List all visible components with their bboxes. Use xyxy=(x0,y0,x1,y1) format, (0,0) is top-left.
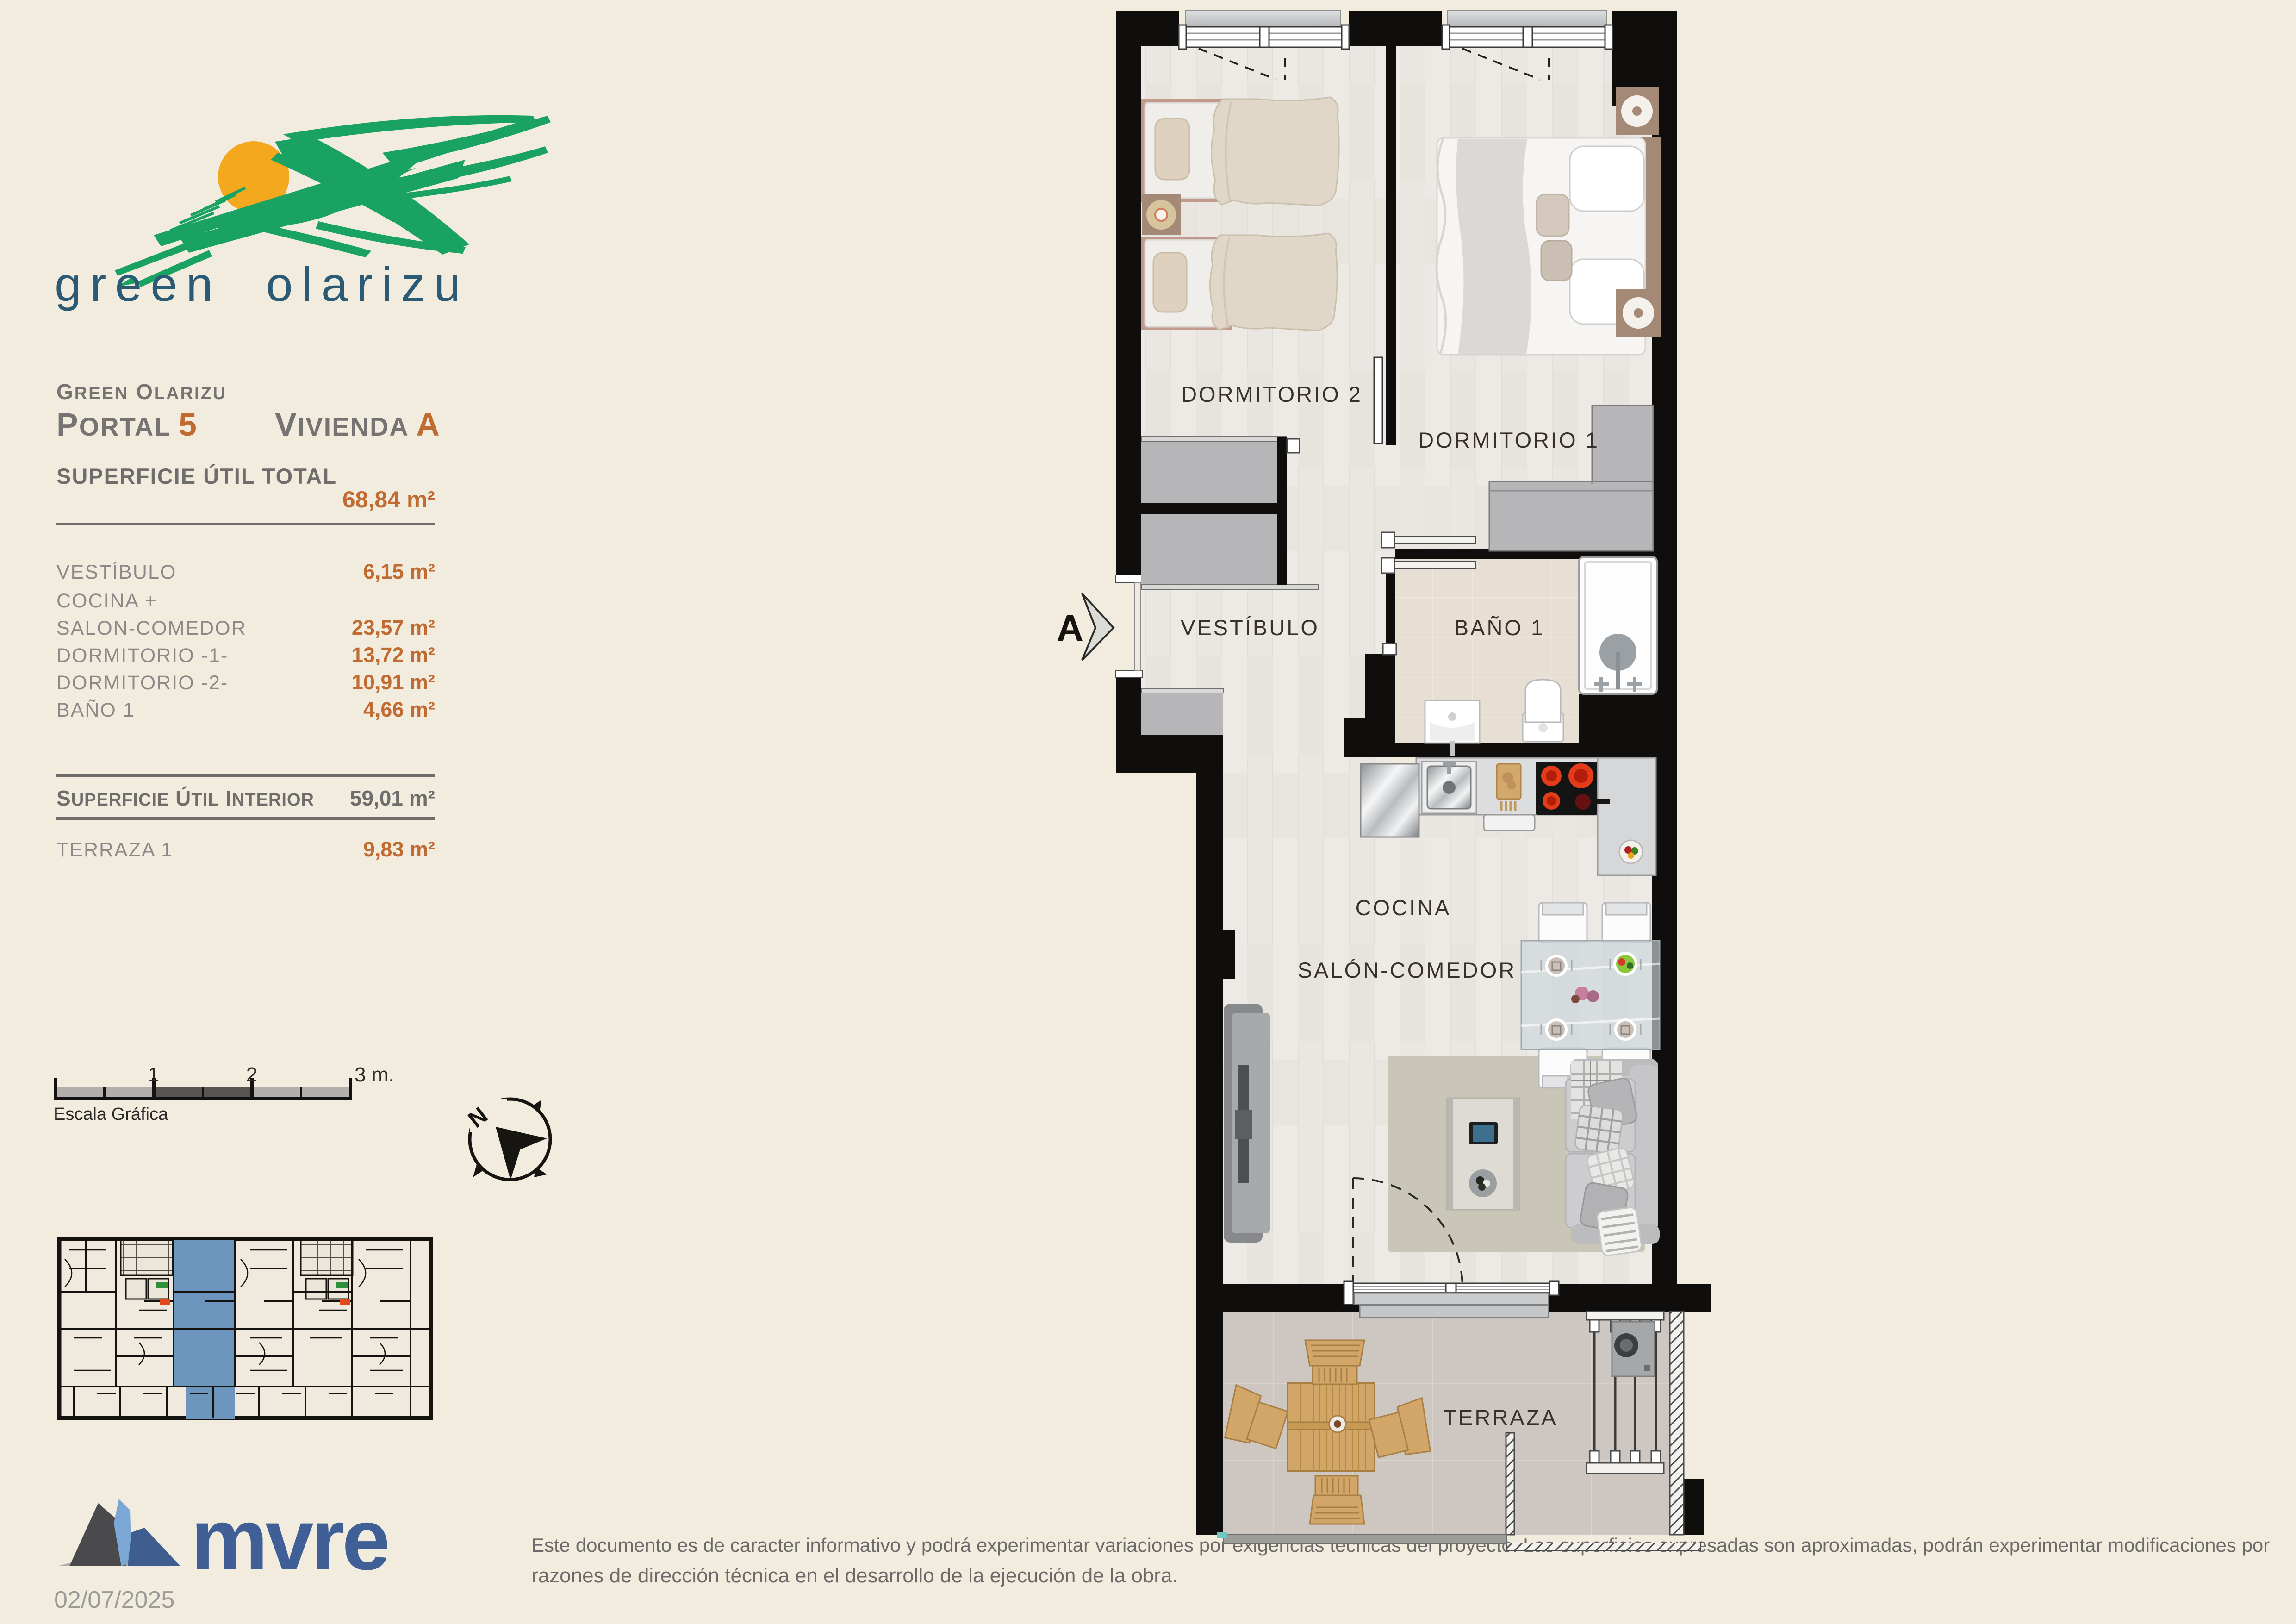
svg-text:DORMITORIO -2-: DORMITORIO -2- xyxy=(56,672,228,694)
svg-text:PORTAL 5: PORTAL 5 xyxy=(56,406,198,443)
svg-text:VESTÍBULO: VESTÍBULO xyxy=(56,561,176,583)
svg-text:DORMITORIO 2: DORMITORIO 2 xyxy=(1181,382,1363,406)
svg-text:4,66 m²: 4,66 m² xyxy=(363,698,435,721)
svg-text:mvre: mvre xyxy=(191,1491,388,1588)
svg-text:VIVIENDA A: VIVIENDA A xyxy=(275,406,441,443)
svg-text:DORMITORIO -1-: DORMITORIO -1- xyxy=(56,644,228,667)
svg-text:9,83 m²: 9,83 m² xyxy=(363,837,435,861)
svg-text:SUPERFICIE ÚTIL TOTAL: SUPERFICIE ÚTIL TOTAL xyxy=(56,464,337,488)
svg-text:DORMITORIO 1: DORMITORIO 1 xyxy=(1418,428,1599,452)
svg-text:10,91 m²: 10,91 m² xyxy=(352,670,435,694)
svg-text:TERRAZA: TERRAZA xyxy=(1443,1405,1557,1430)
svg-text:TERRAZA 1: TERRAZA 1 xyxy=(56,839,173,861)
svg-text:13,72 m²: 13,72 m² xyxy=(352,643,435,667)
svg-text:SALON-COMEDOR: SALON-COMEDOR xyxy=(56,617,247,639)
svg-text:VESTÍBULO: VESTÍBULO xyxy=(1181,615,1319,640)
svg-text:6,15 m²: 6,15 m² xyxy=(363,560,435,583)
svg-text:59,01 m²: 59,01 m² xyxy=(350,786,435,810)
svg-text:68,84 m²: 68,84 m² xyxy=(342,487,435,512)
svg-text:COCINA: COCINA xyxy=(1356,895,1451,920)
svg-text:02/07/2025: 02/07/2025 xyxy=(54,1587,174,1613)
svg-text:SALÓN-COMEDOR: SALÓN-COMEDOR xyxy=(1298,958,1516,982)
svg-text:1: 1 xyxy=(148,1063,159,1086)
svg-text:2: 2 xyxy=(246,1063,257,1086)
svg-text:3 m.: 3 m. xyxy=(355,1063,394,1086)
svg-text:razones de dirección técnica e: razones de dirección técnica en el desar… xyxy=(531,1564,1178,1587)
svg-text:Escala Gráfica: Escala Gráfica xyxy=(54,1105,168,1124)
svg-text:BAÑO 1: BAÑO 1 xyxy=(1454,615,1545,640)
svg-text:BAÑO 1: BAÑO 1 xyxy=(56,699,135,721)
svg-text:COCINA +: COCINA + xyxy=(56,590,157,612)
svg-text:A: A xyxy=(1057,607,1083,649)
svg-text:green olarizu: green olarizu xyxy=(55,258,469,312)
svg-text:23,57 m²: 23,57 m² xyxy=(352,616,435,639)
